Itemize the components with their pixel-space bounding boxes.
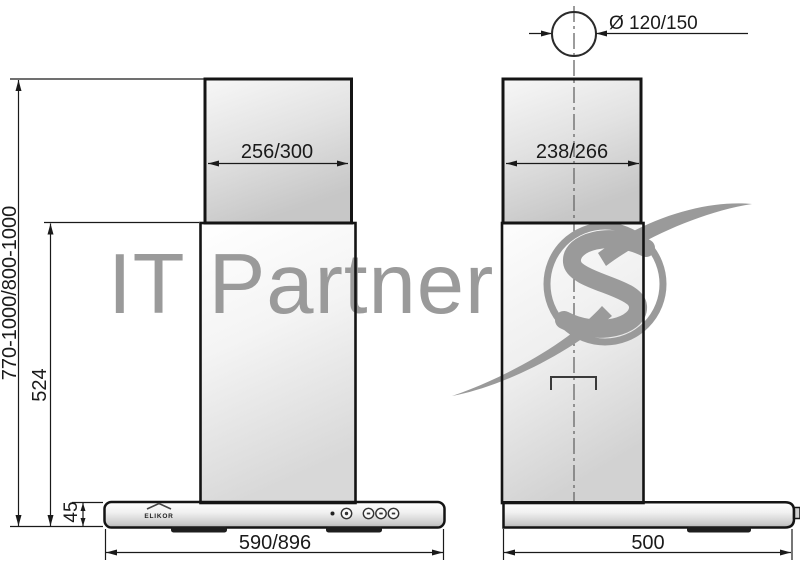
dim-body-depth-label: 500 (631, 532, 664, 554)
drawing-layer: IT Partner (0, 0, 800, 564)
outlet-circle (552, 12, 596, 56)
dim-duct-height-label: 524 (29, 368, 51, 401)
side-body-fill (504, 502, 795, 527)
brand-logo-text: ELIKOR (144, 513, 173, 520)
light-button-icon (345, 512, 348, 515)
dim-body-height-label: 45 (61, 501, 82, 522)
dim-duct-depth-label: 238/266 (536, 141, 608, 163)
speed-button-2-icon (379, 513, 382, 515)
side-body-trim (687, 527, 751, 533)
speed-button-3-icon (392, 513, 395, 515)
technical-drawing-cooker-hood: IT Partner (0, 0, 800, 564)
outlet (552, 12, 596, 56)
power-led (331, 512, 335, 516)
dim-duct-width-label: 256/300 (241, 141, 313, 163)
front-body-trim-right (326, 527, 382, 533)
dim-total-height-label: 770-1000/800-1000 (0, 206, 21, 381)
dim-outlet-diameter-label: Ø 120/150 (609, 13, 698, 34)
front-body-trim-left (171, 527, 227, 533)
speed-button-1-icon (367, 513, 370, 515)
watermark-text: IT Partner (108, 237, 494, 332)
dim-body-width-label: 590/896 (239, 532, 311, 554)
